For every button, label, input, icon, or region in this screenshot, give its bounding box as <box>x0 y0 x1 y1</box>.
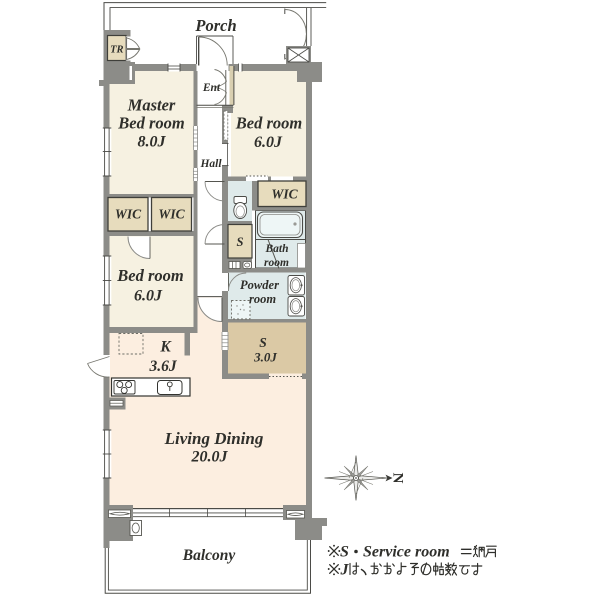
svg-text:Bed room: Bed room <box>235 114 303 133</box>
svg-text:WIC: WIC <box>271 187 298 202</box>
svg-text:Master: Master <box>127 96 176 115</box>
svg-text:Powder: Powder <box>240 278 279 292</box>
svg-text:Bed room: Bed room <box>116 266 184 285</box>
svg-text:Balcony: Balcony <box>182 547 236 564</box>
svg-text:room: room <box>249 292 276 306</box>
svg-text:Service room: Service room <box>363 544 450 561</box>
svg-text:J: J <box>340 562 350 579</box>
svg-text:S: S <box>237 235 244 249</box>
svg-text:6.0J: 6.0J <box>134 288 163 305</box>
svg-text:Porch: Porch <box>194 16 236 35</box>
svg-text:Bed room: Bed room <box>117 114 185 133</box>
svg-text:S: S <box>259 335 267 350</box>
svg-text:N: N <box>390 473 406 484</box>
svg-text:8.0J: 8.0J <box>138 134 167 151</box>
svg-text:Hall: Hall <box>199 158 222 170</box>
svg-text:WIC: WIC <box>158 207 185 222</box>
svg-text:Living Dining: Living Dining <box>164 429 264 448</box>
svg-text:Ent: Ent <box>202 82 221 94</box>
svg-text:K: K <box>159 339 172 356</box>
svg-text:3.0J: 3.0J <box>253 350 277 365</box>
svg-text:20.0J: 20.0J <box>191 449 229 466</box>
svg-text:3.6J: 3.6J <box>148 358 177 375</box>
svg-text:room: room <box>264 257 289 269</box>
svg-text:WIC: WIC <box>115 207 142 222</box>
svg-text:TR: TR <box>110 45 123 56</box>
svg-text:S: S <box>340 544 349 561</box>
svg-text:Bath: Bath <box>264 243 288 255</box>
svg-text:6.0J: 6.0J <box>254 134 283 151</box>
